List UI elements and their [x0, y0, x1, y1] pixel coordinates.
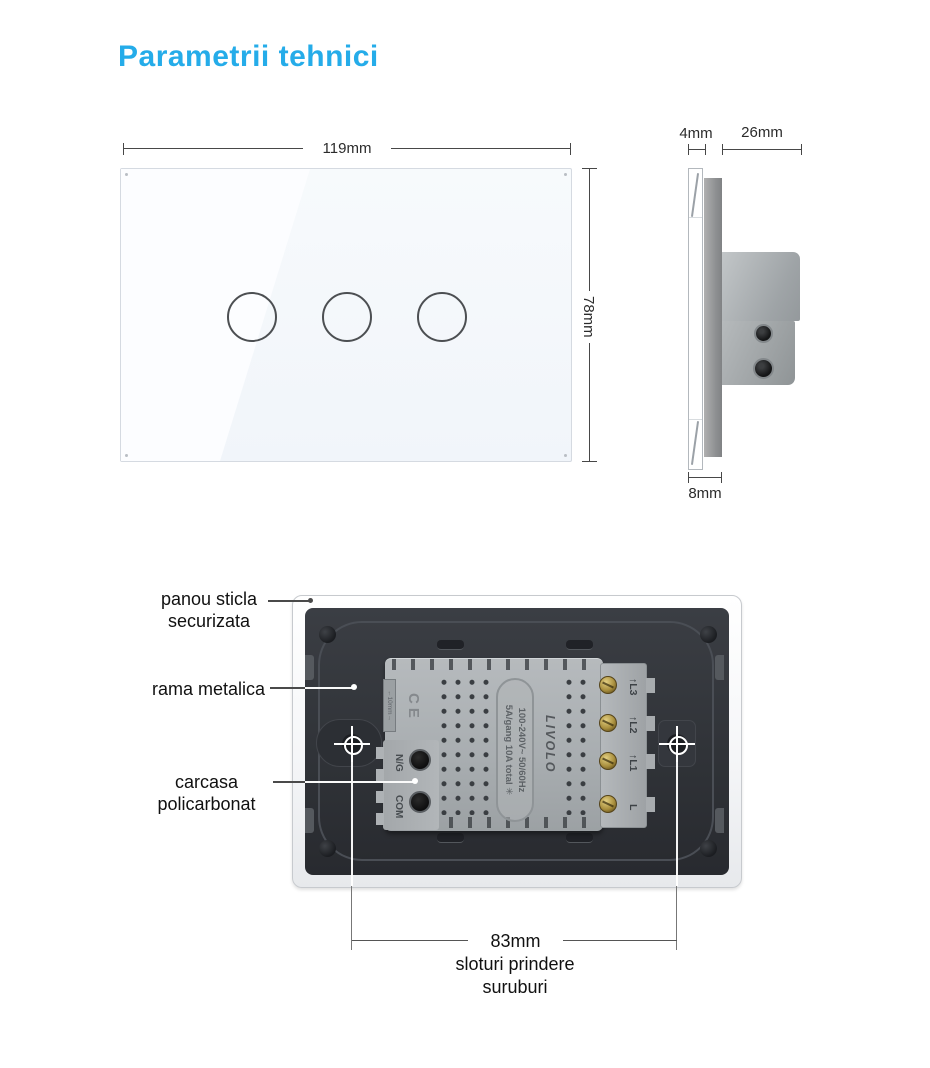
brass-terminal-screw-icon	[599, 676, 617, 694]
glass-dimension-label: 4mm	[670, 125, 722, 142]
corner-screw-icon	[700, 626, 717, 643]
dimension-tick	[721, 472, 722, 483]
callout-pointer-dot	[351, 684, 357, 690]
corner-screw-icon	[700, 840, 717, 857]
terminal-tooth	[376, 747, 384, 759]
dimension-tick	[705, 144, 706, 155]
frame-slot	[437, 833, 464, 843]
frame-clip	[305, 808, 314, 833]
callout-pointer-line	[305, 687, 354, 689]
module-perforations	[562, 675, 593, 815]
terminal-com-label: COM	[390, 790, 404, 824]
touch-button-circle	[417, 292, 467, 342]
frame-side	[704, 178, 722, 457]
brass-terminal-screw-icon	[599, 714, 617, 732]
glass-panel-side	[688, 168, 703, 470]
module-side-upper	[722, 252, 800, 321]
dimension-tick	[801, 144, 802, 155]
glass-dimension-line	[688, 149, 706, 150]
screw-slots-dimension-label: 83mm	[468, 931, 563, 952]
callout-pointer-line	[305, 781, 415, 783]
terminal-hole-icon	[753, 358, 774, 379]
dimension-tick	[722, 144, 723, 155]
depth-dimension-label: 26mm	[731, 124, 793, 141]
technical-spec-sheet: Parametrii tehnici 119mm 78mm	[0, 0, 930, 1068]
dimension-tick	[123, 143, 124, 155]
screw-slots-caption: suruburi	[425, 977, 605, 998]
terminal-tooth	[376, 791, 384, 803]
extension-line	[351, 744, 353, 886]
terminal-tooth	[646, 754, 655, 769]
touch-button-circle	[322, 292, 372, 342]
frame-clip	[715, 655, 724, 680]
frame-slot	[566, 640, 593, 650]
gap-gauge-label: ←10mm→	[383, 679, 396, 732]
terminal-ng-label: N/G	[390, 746, 404, 780]
callout-pointer-line	[273, 781, 305, 783]
glass-panel-front	[120, 168, 572, 462]
terminal-tooth	[646, 678, 655, 693]
glass-seam	[689, 419, 702, 420]
terminal-l1-label: ↑L1	[625, 748, 639, 778]
glass-seam	[689, 217, 702, 218]
panel-corner-dot	[125, 173, 128, 176]
dimension-tick	[582, 168, 597, 169]
depth-dimension-line	[722, 149, 802, 150]
callout-pointer-line	[268, 600, 310, 602]
rating-voltage: 100-240V~ 50/60Hz	[515, 680, 528, 820]
brass-terminal-screw-icon	[599, 795, 617, 813]
terminal-tooth	[376, 769, 384, 781]
callout-pointer-line	[270, 687, 305, 689]
glass-reflection	[691, 173, 699, 217]
width-dimension-label: 119mm	[303, 140, 391, 157]
corner-screw-icon	[319, 840, 336, 857]
frame-clip	[305, 655, 314, 680]
dimension-tick	[688, 144, 689, 155]
terminal-screw-icon	[409, 791, 431, 813]
glass-reflection	[691, 421, 699, 465]
module-perforations	[437, 675, 494, 815]
terminal-tooth	[376, 813, 384, 825]
thickness-dimension-line	[688, 477, 722, 478]
terminal-l2-label: ↑L2	[625, 710, 639, 740]
callout-frame: rama metalica	[120, 678, 265, 700]
frame-clip	[715, 808, 724, 833]
screw-slots-caption: sloturi prindere	[425, 954, 605, 975]
page-title: Parametrii tehnici	[118, 40, 379, 74]
touch-button-circle	[227, 292, 277, 342]
callout-case: carcasa policarbonat	[143, 771, 270, 815]
panel-corner-dot	[125, 454, 128, 457]
dimension-tick	[570, 143, 571, 155]
terminal-tooth	[646, 797, 655, 812]
terminal-l3-label: ↑L3	[625, 672, 639, 702]
ce-mark: CE	[400, 684, 422, 730]
module-vents	[392, 659, 592, 670]
frame-slot	[566, 833, 593, 843]
brand-label: LIVOLO	[541, 714, 557, 774]
callout-pointer-dot	[308, 598, 313, 603]
thickness-dimension-label: 8mm	[678, 485, 732, 502]
rating-current: 5A/gang 10A total ✳	[502, 680, 515, 820]
dimension-tick	[582, 461, 597, 462]
panel-corner-dot	[564, 173, 567, 176]
terminal-tooth	[646, 716, 655, 731]
callout-pointer-dot	[412, 778, 418, 784]
frame-slot	[437, 640, 464, 650]
corner-screw-icon	[319, 626, 336, 643]
callout-glass: panou sticla securizata	[139, 588, 279, 632]
extension-line	[676, 744, 678, 886]
terminal-screw-icon	[409, 749, 431, 771]
panel-corner-dot	[564, 454, 567, 457]
terminal-l-label: L	[625, 792, 639, 822]
height-dimension-label: 78mm	[581, 291, 596, 343]
brass-terminal-screw-icon	[599, 752, 617, 770]
rating-badge: 100-240V~ 50/60Hz 5A/gang 10A total ✳	[496, 678, 534, 822]
terminal-hole-icon	[754, 324, 773, 343]
dimension-tick	[688, 472, 689, 483]
